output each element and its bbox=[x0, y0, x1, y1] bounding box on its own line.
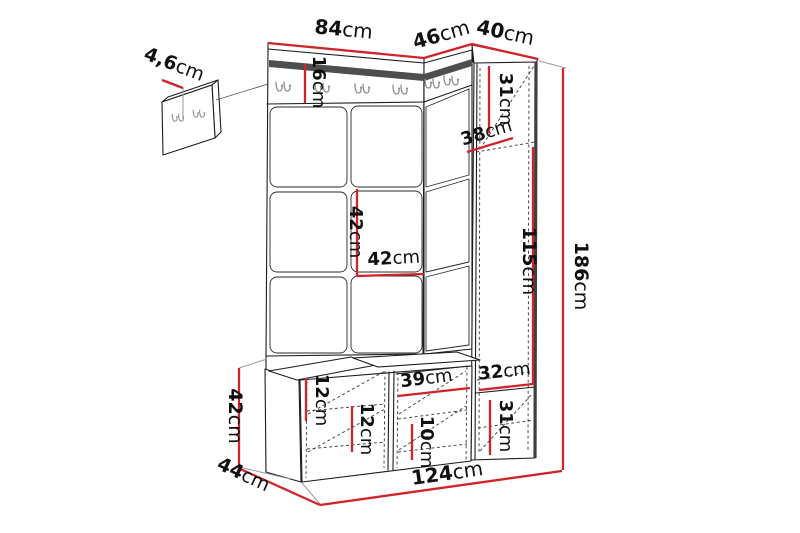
label-panel-width: 84cm bbox=[313, 14, 373, 43]
label-cabinet-width: 40cm bbox=[474, 14, 536, 50]
label-cabinet-bottom-height: 31cm bbox=[495, 400, 516, 453]
label-tile-height: 42cm bbox=[345, 206, 366, 259]
diagram-canvas: 84cm 46cm 40cm 4,6cm 16cm 31cm 38cm 115c… bbox=[0, 0, 800, 533]
label-rail-height: 16cm bbox=[308, 56, 329, 109]
label-bench-height: 42cm bbox=[224, 388, 246, 443]
label-total-height: 186cm bbox=[570, 242, 592, 311]
label-bench-compartment-height: 10cm bbox=[416, 416, 437, 469]
dimension-hook-panel-thickness-line bbox=[162, 80, 183, 88]
label-seat-thickness: 12cm bbox=[311, 374, 332, 427]
label-corner-width: 46cm bbox=[410, 15, 473, 54]
label-bench-depth: 44cm bbox=[214, 453, 274, 496]
label-hook-panel-thickness: 4,6cm bbox=[141, 43, 207, 86]
furniture-dimension-diagram: 84cm 46cm 40cm 4,6cm 16cm 31cm 38cm 115c… bbox=[0, 0, 800, 533]
label-cabinet-mid-height: 115cm bbox=[518, 227, 540, 296]
upholstered-panel-section bbox=[266, 43, 473, 356]
label-tile-width: 42cm bbox=[367, 247, 421, 271]
leader-line bbox=[216, 84, 268, 100]
label-bench-shelf-height: 12cm bbox=[356, 403, 377, 456]
wall-hook-panel bbox=[162, 80, 268, 155]
